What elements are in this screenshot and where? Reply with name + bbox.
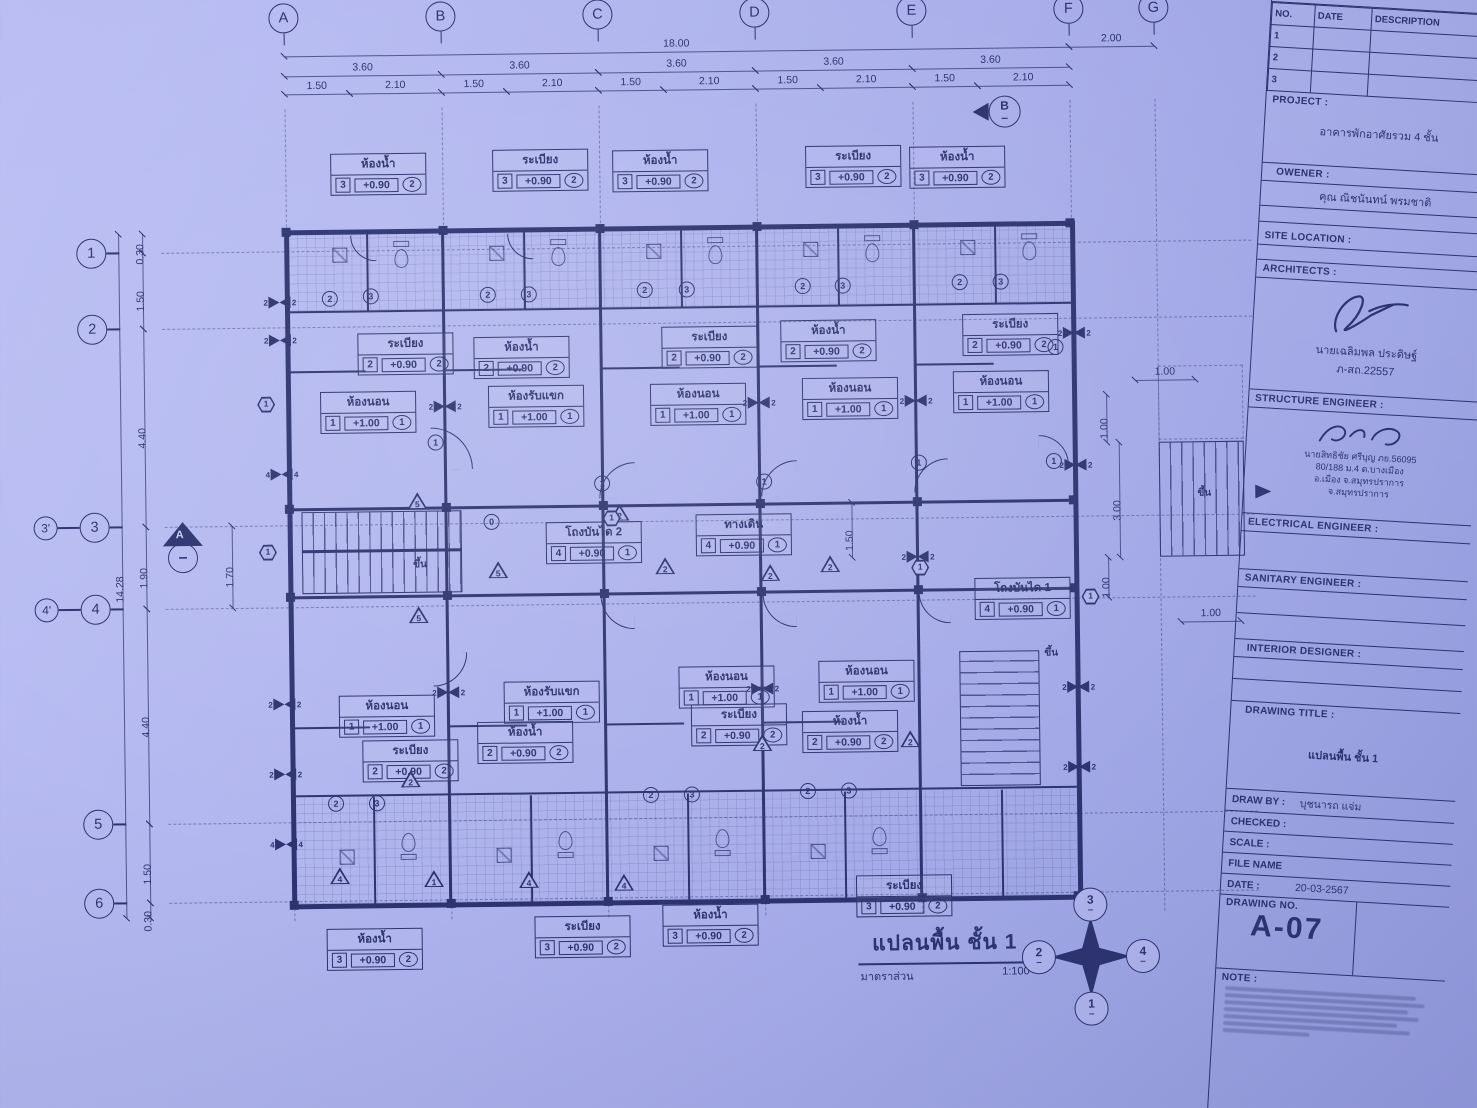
room-level: +0.90 <box>354 177 398 192</box>
room-label: โถงบันได 1 4 +0.90 1 <box>974 577 1071 620</box>
dimension-text: 18.00 <box>663 37 689 49</box>
room-badge: 1 <box>891 684 910 699</box>
room-name: ระเบียง <box>535 916 629 938</box>
toilet-icon <box>715 829 729 848</box>
grid-bubble-6: 6 <box>84 889 114 919</box>
toilet-tank <box>1021 233 1037 239</box>
room-badge: 1 <box>576 705 595 720</box>
bubble-tail <box>911 26 913 38</box>
dimension-line <box>598 90 663 92</box>
room-label: ห้องรับแขก 1 +1.00 1 <box>504 681 601 724</box>
door-arc <box>918 591 950 623</box>
dimension-line <box>1069 46 1154 48</box>
dimension-text: 3.60 <box>666 57 687 69</box>
room-name: ระเบียง <box>662 327 756 349</box>
stair-bottom-right <box>959 650 1041 786</box>
room-number: 1 <box>655 408 670 423</box>
room-label: ห้องนอน 1 +1.00 1 <box>953 370 1050 413</box>
toilet-tank <box>872 848 888 854</box>
circle-marker: 2 <box>795 278 811 294</box>
room-level: +1.00 <box>344 416 388 431</box>
room-level: +0.90 <box>933 170 977 185</box>
room-badge: 1 <box>874 401 893 416</box>
shower-icon <box>489 246 504 261</box>
note-text-blur <box>1223 1028 1310 1037</box>
room-level: +0.90 <box>720 538 764 553</box>
dimension-text: 1.90 <box>138 568 150 589</box>
grid-bubble-4: 4 <box>80 595 110 625</box>
architect-signature <box>1321 287 1416 344</box>
room-level: +1.00 <box>703 690 747 705</box>
room-level: +1.00 <box>528 705 572 720</box>
room-label: ห้องนอน 1 +1.00 1 <box>320 391 417 434</box>
dimension-text: 1.50 <box>777 74 798 86</box>
dimension-text: 3.00 <box>1111 500 1123 521</box>
room-name: ห้องน้ำ <box>474 337 568 359</box>
toilet-icon <box>558 831 572 850</box>
window-marker: 22 <box>1058 459 1093 471</box>
room-level: +0.90 <box>687 928 731 943</box>
window-marker: 22 <box>899 394 934 406</box>
elevation-rose: 3–2–4–1– <box>1038 904 1143 1009</box>
circle-marker: 1 <box>428 434 444 450</box>
room-label: ห้องน้ำ 3 +0.90 2 <box>330 153 427 196</box>
dimension-text: 2.10 <box>385 79 406 91</box>
room-number: 2 <box>363 357 378 372</box>
room-level: +0.90 <box>351 953 395 968</box>
room-badge: 2 <box>430 356 449 371</box>
triangle-marker: 5 <box>407 492 427 509</box>
circle-marker: 3 <box>841 782 857 798</box>
wall <box>288 370 366 373</box>
drawing-no-aux-cell <box>1353 902 1449 980</box>
window-marker: 22 <box>268 768 303 780</box>
dimension-line <box>755 88 820 90</box>
dimension-text: 1.50 <box>306 80 327 92</box>
room-number: 3 <box>540 940 555 955</box>
room-name: ห้องน้ำ <box>803 711 897 733</box>
dimension-text: 1.00 <box>1200 607 1221 619</box>
shower-icon <box>497 848 512 863</box>
room-badge: 2 <box>735 928 754 943</box>
drawing-title-value: แปลนพื้น ชั้น 1 <box>1234 741 1452 771</box>
room-level: +1.00 <box>977 395 1021 410</box>
room-label: ห้องน้ำ 3 +0.90 2 <box>327 928 424 971</box>
room-name: ระเบียง <box>692 704 786 726</box>
room-label: ห้องน้ำ 3 +0.90 2 <box>662 904 759 947</box>
dimension-line <box>441 92 506 94</box>
circle-marker: 3 <box>521 286 537 302</box>
grid-bubble-D: D <box>739 0 769 28</box>
room-badge: 2 <box>399 952 418 967</box>
room-label: ห้องน้ำ 2 +0.90 2 <box>477 721 574 764</box>
room-name: ทางเดิน <box>697 514 791 536</box>
column-square <box>909 220 918 229</box>
room-name: ห้องน้ำ <box>331 154 425 176</box>
filename-label: FILE NAME <box>1228 857 1291 872</box>
room-badge: 1 <box>560 409 579 424</box>
hex-marker: 1 <box>257 397 275 413</box>
room-name: ระเบียง <box>358 333 452 355</box>
room-badge: 1 <box>411 719 430 734</box>
dimension-text: 1.50 <box>934 72 955 84</box>
room-name: ห้องรับแขก <box>505 682 599 704</box>
stair-up-label: ขึ้น <box>1044 645 1058 660</box>
wall <box>916 363 994 366</box>
drawing-no-section: DRAWING NO. A-07 <box>1216 895 1449 982</box>
wall <box>606 723 684 726</box>
room-number: 1 <box>684 690 699 705</box>
room-badge: 2 <box>877 169 896 184</box>
room-label: ห้องน้ำ 2 +0.90 2 <box>802 710 899 753</box>
room-level: +0.90 <box>986 338 1030 353</box>
rose-circle-1: 1– <box>1074 991 1108 1025</box>
circle-marker: 2 <box>480 287 496 303</box>
structure-signature <box>1313 416 1411 451</box>
structure-lines: นายสิทธิชัย ศรีบุญ ภย.5609580/188 ม.4 ต.… <box>1250 445 1469 506</box>
stair-up-label: ขึ้น <box>413 557 427 572</box>
room-badge: 2 <box>546 360 565 375</box>
caption-scale-label: มาตราส่วน <box>860 967 913 986</box>
room-label: ห้องน้ำ 3 +0.90 2 <box>909 146 1006 189</box>
hex-marker: 1 <box>259 544 277 560</box>
column-square <box>286 593 295 602</box>
dimension-line <box>441 73 598 76</box>
rose-circle-4: 4– <box>1126 939 1160 973</box>
circle-marker: 0 <box>483 514 499 530</box>
drawby-label: DRAW BY : <box>1232 794 1295 809</box>
dimension-line <box>506 91 598 94</box>
room-badge: 1 <box>1047 601 1066 616</box>
dimension-text: 1.50 <box>463 78 484 90</box>
toilet-icon <box>401 833 415 852</box>
room-name: ระเบียง <box>963 314 1057 336</box>
circle-marker: 3 <box>835 277 851 293</box>
grid-bubble-A: A <box>268 3 298 33</box>
room-label: ห้องนอน 1 +1.00 1 <box>650 383 747 426</box>
dimension-line <box>755 69 912 72</box>
blueprint-photo: { "titleblock":{ "revision_label":"REVIS… <box>0 0 1477 1108</box>
plan-caption: แปลนพื้น ชั้น 1 มาตราส่วน 1:100 <box>858 925 1032 985</box>
wall <box>289 499 1073 511</box>
window-marker: 44 <box>264 468 299 480</box>
room-label: ระเบียง 3 +0.90 2 <box>856 874 953 917</box>
room-number: 3 <box>861 899 876 914</box>
room-badge: 2 <box>763 727 782 742</box>
toilet-icon <box>394 249 408 268</box>
window-marker: 22 <box>1057 327 1092 339</box>
column-square <box>756 499 765 508</box>
room-name: ห้องน้ำ <box>478 722 572 744</box>
room-name: ห้องน้ำ <box>910 147 1004 169</box>
dimension-line <box>349 92 441 95</box>
room-name: ห้องรับแขก <box>489 386 583 408</box>
bubble-tail <box>597 30 599 42</box>
room-number: 4 <box>701 538 716 553</box>
window-marker: 44 <box>269 838 304 850</box>
toilet-tank <box>401 854 417 860</box>
window-marker: 22 <box>262 296 297 308</box>
dimension-text: 2.10 <box>1013 71 1034 83</box>
dimension-text: 2.10 <box>542 77 563 89</box>
column-square <box>752 222 761 231</box>
room-badge: 2 <box>928 898 947 913</box>
date-value: 20-03-2567 <box>1295 882 1349 897</box>
room-number: 4 <box>551 546 566 561</box>
room-level: +0.90 <box>715 728 759 743</box>
room-badge: 2 <box>549 745 568 760</box>
toilet-tank <box>864 235 880 241</box>
bubble-tail <box>754 28 756 40</box>
shower-icon <box>811 844 826 859</box>
room-name: ห้องน้ำ <box>781 320 875 342</box>
room-level: +0.90 <box>826 735 870 750</box>
room-level: +0.90 <box>382 357 426 372</box>
window-marker: 22 <box>1062 760 1097 772</box>
architect-section: นายเฉลิมพล ประดิษฐ์ ภ-สถ.22557 <box>1250 278 1477 403</box>
triangle-marker: 2 <box>820 555 840 572</box>
bubble-tail <box>1068 24 1070 36</box>
toilet-tank <box>707 237 723 243</box>
room-number: 1 <box>344 720 359 735</box>
room-number: 2 <box>807 735 822 750</box>
shower-icon <box>332 248 347 263</box>
dimension-text: 3.60 <box>823 56 844 68</box>
circle-marker: 3 <box>679 281 695 297</box>
door-arc <box>762 593 796 627</box>
circle-marker: 2 <box>322 291 338 307</box>
circle-marker: 2 <box>800 783 816 799</box>
dimension-text: 1.50 <box>620 76 641 88</box>
door-arc <box>433 652 467 686</box>
room-level: +0.90 <box>501 746 545 761</box>
triangle-marker: 5 <box>409 606 429 623</box>
room-number: 3 <box>332 953 347 968</box>
shower-icon <box>654 846 669 861</box>
room-label: ระเบียง 3 +0.90 2 <box>492 149 589 192</box>
window-marker: 22 <box>263 334 298 346</box>
room-badge: 2 <box>684 173 703 188</box>
room-badge: 1 <box>392 415 411 430</box>
room-label: ห้องนอน 1 +1.00 1 <box>802 377 899 420</box>
room-level: +1.00 <box>363 719 407 734</box>
room-name: ห้องนอน <box>651 384 745 406</box>
dimension-line <box>912 67 1069 70</box>
blueprint-sheet: ABCDEFG1233'44'5618.002.003.603.603.603.… <box>0 0 1477 1108</box>
window-marker: 22 <box>267 698 302 710</box>
circle-marker: 1 <box>1047 339 1063 355</box>
drawing-no-value: A-07 <box>1224 908 1350 949</box>
room-number: 1 <box>493 410 508 425</box>
circle-marker: 3 <box>363 288 379 304</box>
room-number: 4 <box>980 602 995 617</box>
column-square <box>913 497 922 506</box>
room-number: 1 <box>958 395 973 410</box>
project-value: อาคารพักอาศัยรวม 4 ชั้น <box>1270 119 1477 149</box>
room-name: ห้องน้ำ <box>663 905 757 927</box>
shower-icon <box>960 240 975 255</box>
room-label: ระเบียง 3 +0.90 2 <box>805 145 902 188</box>
room-label: ระเบียง 3 +0.90 2 <box>534 915 631 958</box>
circle-marker: 3 <box>684 786 700 802</box>
room-badge: 2 <box>402 177 421 192</box>
room-label: ห้องน้ำ 3 +0.90 2 <box>612 149 709 192</box>
room-label: โถงบันได 2 4 +0.90 1 <box>546 521 643 564</box>
shower-icon <box>340 850 355 865</box>
note-section: NOTE : <box>1212 968 1445 1050</box>
window-marker: 22 <box>745 682 780 694</box>
circle-marker: 1 <box>594 475 610 491</box>
room-name: ระเบียง <box>857 875 951 897</box>
toilet-tank <box>393 241 409 247</box>
room-name: ห้องนอน <box>819 661 913 683</box>
window-marker: 22 <box>1061 680 1096 692</box>
toilet-icon <box>708 245 722 264</box>
stair-up-label: ขึ้น <box>1197 486 1211 501</box>
room-level: +0.90 <box>570 546 614 561</box>
dimension-line <box>284 94 349 96</box>
column-square <box>281 228 290 237</box>
grid-bubble-B: B <box>425 1 455 31</box>
room-level: +0.90 <box>498 361 542 376</box>
toilet-icon <box>865 243 879 262</box>
room-level: +0.90 <box>686 350 730 365</box>
bathroom-tile-strip <box>288 226 1071 312</box>
dimension-line <box>912 86 977 88</box>
room-label: ระเบียง 2 +0.90 2 <box>357 332 454 375</box>
circle-marker: 2 <box>328 796 344 812</box>
room-label: ระเบียง 2 +0.90 2 <box>962 313 1059 356</box>
window-marker: 22 <box>431 686 466 698</box>
room-level: +0.90 <box>804 344 848 359</box>
room-number: 2 <box>696 728 711 743</box>
room-number: 1 <box>325 416 340 431</box>
toilet-icon <box>872 827 886 846</box>
dimension-text: 3.60 <box>980 54 1001 66</box>
dimension-text: 4.40 <box>136 428 148 449</box>
room-level: +1.00 <box>674 408 718 423</box>
room-name: ระเบียง <box>363 740 457 762</box>
room-label: ระเบียง 2 +0.90 2 <box>661 326 758 369</box>
room-number: 3 <box>668 929 683 944</box>
circle-marker: 2 <box>952 274 968 290</box>
room-badge: 2 <box>981 170 1000 185</box>
room-label: ห้องนอน 1 +1.00 1 <box>818 660 915 703</box>
window-marker: 22 <box>428 400 463 412</box>
drawby-value: บุชนารถ แจ่ม <box>1299 795 1362 816</box>
room-level: +1.00 <box>512 410 556 425</box>
room-number: 3 <box>335 178 350 193</box>
circle-marker: 1 <box>1046 453 1062 469</box>
grid-bubble-3': 3' <box>33 516 57 540</box>
toilet-tank <box>558 852 574 858</box>
column-square <box>761 895 770 904</box>
date-label: DATE : <box>1227 878 1290 893</box>
grid-bubble-E: E <box>896 0 926 26</box>
drawing-title-section: DRAWING TITLE : แปลนพื้น ชั้น 1 <box>1227 701 1461 802</box>
room-name: ระเบียง <box>493 150 587 172</box>
dimension-line <box>598 71 755 74</box>
dimension-text: 14.28 <box>114 576 126 602</box>
toilet-icon <box>1022 241 1036 260</box>
dimension-text: 0.30 <box>142 911 154 932</box>
bubble-tail <box>59 609 81 611</box>
room-label: ห้องนอน 1 +1.00 1 <box>339 695 436 738</box>
room-level: +0.90 <box>636 174 680 189</box>
section-marker-A: A– <box>163 522 204 573</box>
grid-bubble-5: 5 <box>83 810 113 840</box>
column-square <box>285 505 294 514</box>
dimension-text: 1.00 <box>1100 577 1112 598</box>
revision-table: NO.DATEDESCRIPTION 123 <box>1267 2 1477 104</box>
room-number: 3 <box>810 170 825 185</box>
toilet-tank <box>715 850 731 856</box>
room-number: 2 <box>785 344 800 359</box>
room-level: +0.90 <box>516 174 560 189</box>
room-number: 3 <box>914 170 929 185</box>
bubble-tail <box>283 33 285 45</box>
grid-bubble-3: 3 <box>79 513 109 543</box>
room-level: +1.00 <box>843 685 887 700</box>
wall <box>759 365 837 368</box>
room-label: ระเบียง 2 +0.90 2 <box>691 703 788 746</box>
triangle-marker: 2 <box>760 564 780 581</box>
room-badge: 2 <box>874 734 893 749</box>
dimension-line <box>663 89 755 92</box>
room-label: ทางเดิน 4 +0.90 1 <box>696 513 793 556</box>
rose-blade <box>1079 916 1101 956</box>
column-square <box>595 224 604 233</box>
room-label: ห้องน้ำ 2 +0.90 2 <box>473 336 570 379</box>
grid-bubble-G: G <box>1138 0 1168 23</box>
room-label: ห้องรับแขก 1 +1.00 1 <box>488 385 585 428</box>
grid-bubble-2: 2 <box>77 315 107 345</box>
dimension-text: 2.10 <box>699 75 720 87</box>
checked-label: CHECKED : <box>1230 816 1293 831</box>
room-level: +0.90 <box>829 170 873 185</box>
room-badge: 2 <box>564 173 583 188</box>
room-number: 1 <box>807 402 822 417</box>
triangle-marker: 5 <box>488 561 508 578</box>
room-name: ห้องนอน <box>954 371 1048 393</box>
column-square <box>604 897 613 906</box>
room-badge: 1 <box>1025 394 1044 409</box>
column-square <box>599 501 608 510</box>
hex-marker: 1 <box>1081 588 1099 604</box>
dimension-text: 1.00 <box>1098 418 1110 439</box>
room-number: 2 <box>967 338 982 353</box>
room-name: โถงบันได 1 <box>975 578 1069 600</box>
column-square <box>438 226 447 235</box>
circle-marker: 1 <box>756 473 772 489</box>
section-marker-B: B– <box>972 95 1020 128</box>
column-square <box>447 899 456 908</box>
toilet-icon <box>551 247 565 266</box>
dimension-line <box>977 85 1069 88</box>
room-badge: 1 <box>768 537 787 552</box>
dimension-text: 2.10 <box>856 73 877 85</box>
room-name: โถงบันได 2 <box>547 522 641 544</box>
circle-marker: 2 <box>637 282 653 298</box>
structure-section: นายสิทธิชัย ศรีบุญ ภย.5609580/188 ม.4 ต.… <box>1242 407 1477 526</box>
window-marker: 22 <box>742 396 777 408</box>
dimension-text: 1.50 <box>142 864 154 885</box>
room-number: 2 <box>482 746 497 761</box>
grid-bubble-4': 4' <box>34 598 58 622</box>
room-number: 1 <box>509 705 524 720</box>
dimension-text: 1.50 <box>844 530 856 551</box>
room-name: ระเบียง <box>806 146 900 168</box>
